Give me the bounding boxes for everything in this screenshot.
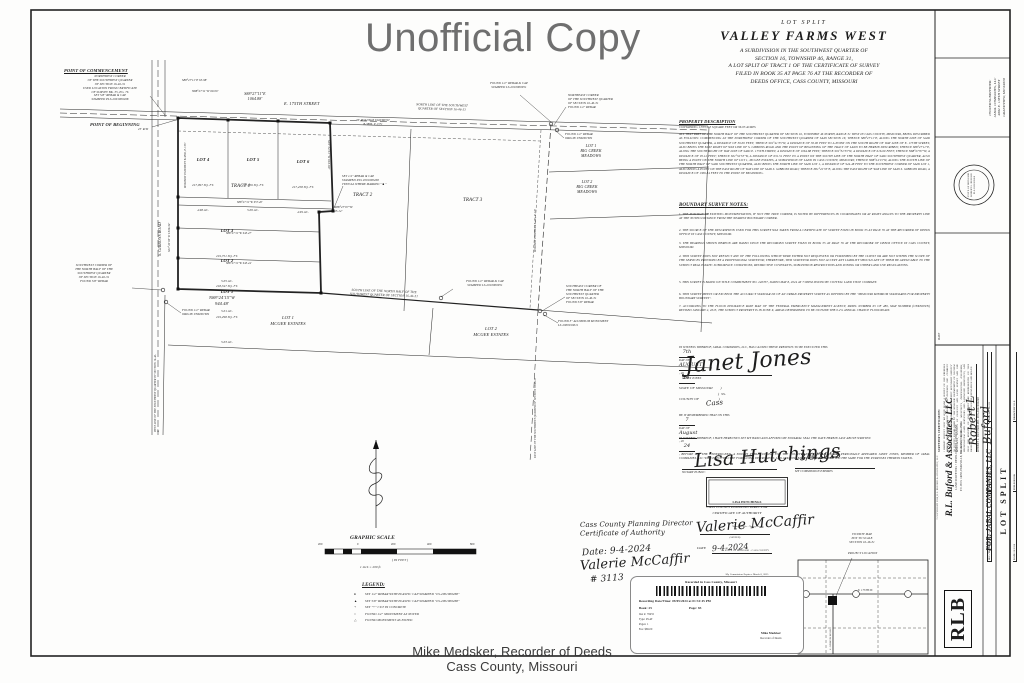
field-date-value: 08/2024 bbox=[1013, 544, 1016, 553]
north-arrow bbox=[369, 440, 382, 528]
found-unknown-ne: FOUND 1/2" REBAR ORIGIN UNKNOWN bbox=[565, 133, 593, 141]
company-name: R.L. Buford & Associates, LLC bbox=[944, 352, 956, 562]
legend-sym-2: + bbox=[354, 605, 356, 609]
execution-end: , 20 bbox=[679, 371, 684, 375]
page-title: VALLEY FARMS WEST bbox=[678, 28, 930, 45]
legend-item-1: SET 5/8" REBAR WITH PLASTIC CAP STAMPED … bbox=[365, 599, 459, 603]
for-client-panel: FOR: JABAL COMPANIES, LLC bbox=[985, 350, 994, 650]
tract3-label: TRACT 3 bbox=[463, 198, 482, 205]
ack-mid: DAY OF bbox=[679, 426, 690, 430]
tract2-label: TRACT 2 bbox=[353, 193, 372, 200]
survey-notes-heading: BOUNDARY SURVEY NOTES: bbox=[679, 203, 748, 210]
vicinity-title: VICINITY MAP NOT TO SCALE SECTION 16-46-… bbox=[832, 533, 892, 545]
recorder-seal-title: Recorder of Deeds bbox=[746, 637, 796, 640]
property-description-body: ALL THAT PART OF THE NORTH HALF OF THE S… bbox=[679, 132, 930, 175]
recording-book: Book: 25 bbox=[639, 606, 652, 610]
big-creek-lot1: LOT 1 BIG CREEK MEADOWS bbox=[568, 143, 614, 159]
point-of-commencement-label: POINT OF COMMENCEMENT bbox=[64, 68, 128, 74]
lot4-name: LOT 4 bbox=[183, 157, 223, 163]
surveyor-seal-text: STATE OF MISSOURI ROBERT L. BUFORD PLS-2… bbox=[967, 166, 976, 204]
vicinity-map-lines bbox=[798, 560, 928, 654]
lot1-label: LOT 1 219,298 SQ. FT. 5.03 AC. bbox=[205, 268, 249, 365]
lot5-name: LOT 5 bbox=[233, 157, 273, 163]
recording-fee: Fee: $69.00 bbox=[639, 628, 652, 631]
west-line-label: WEST LINE OF THE SOUTHWEST QUARTER OF SE… bbox=[154, 352, 161, 432]
scale-in-feet: ( IN FEET ) bbox=[360, 558, 440, 562]
ne-corner-label: NORTHEAST CORNER OF THE SOUTHWEST QUARTE… bbox=[568, 94, 613, 110]
notary-stamp-name: LISA HUTCHINGS bbox=[707, 500, 787, 504]
legend-sym-3: ○ bbox=[354, 612, 356, 616]
lot1-name: LOT 1 bbox=[205, 289, 249, 295]
company-address: P.O. BOX 14058, PARKVILLE, MO. 64152 (81… bbox=[960, 352, 963, 562]
plat-sheet: Unofficial Copy Mike Medsker, Recorder o… bbox=[0, 0, 1024, 683]
footer-county: Cass County, Missouri bbox=[312, 659, 712, 676]
scale-tick-1: 0 bbox=[357, 543, 359, 547]
gibbons-road-label: S. GIBBONS ROAD bbox=[157, 194, 162, 256]
recording-page: Page: 83 bbox=[689, 606, 701, 610]
recording-stamp: Recorded in Cass County, Missouri Record… bbox=[630, 576, 804, 654]
found-aluminum: FOUND 3" ALUMINUM MONUMENT LS-2000019011 bbox=[558, 320, 609, 328]
east-line-label: EAST LINE OF THE SOUTHWEST QUARTER OF SE… bbox=[534, 376, 537, 458]
owner-subdivider-block: OWNER/SUBDIVIDER: JABAL COMPANIES, LLC 4… bbox=[988, 60, 1007, 135]
commission-expires-label: MY COMMISSION EXPIRES bbox=[795, 468, 875, 474]
commission-date-handwritten: 3/8/2025 bbox=[800, 452, 841, 464]
rw-25-label: 25' R/W bbox=[138, 128, 148, 132]
lot6-name: LOT 6 bbox=[283, 159, 323, 165]
legend-title: LEGEND: bbox=[362, 583, 385, 590]
project-location-marker bbox=[828, 596, 837, 605]
owner-signature-name: JANET JONES bbox=[682, 375, 772, 381]
notary-witness-clause: IN WITNESS WHEREOF, I HAVE HEREUNTO SET … bbox=[679, 436, 930, 441]
planning-note-line2: Certificate of Authority bbox=[580, 528, 665, 539]
sw-corner-label: SOUTHWEST CORNER OF THE NORTH HALF OF TH… bbox=[54, 264, 134, 283]
planning-cert-date: 9-4-2024 bbox=[712, 543, 772, 554]
title-block-fields: SEC./TWP./RGE. 16-46-31 COUNTY CASS JOB … bbox=[966, 352, 1024, 562]
recording-pages: Pages: 1 bbox=[639, 623, 649, 626]
found-cap-ne: FOUND 1/2" REBAR & CAP STAMPED LS-201000… bbox=[474, 82, 544, 90]
planning-cert-date-label: DATE bbox=[697, 546, 706, 551]
graphic-scale-title: GRAPHIC SCALE bbox=[350, 535, 395, 542]
recording-datetime: Recording Date/Time: 09/05/2024 at 01:31… bbox=[639, 599, 711, 603]
dim-tract: S88°27'11"W 957.40' bbox=[237, 201, 263, 205]
legend-item-4: FOUND MONUMENT AS NOTED bbox=[365, 618, 412, 622]
lot6-acres: 4.99 AC. bbox=[283, 210, 323, 214]
recording-type: Type: PLAT bbox=[639, 618, 653, 621]
esmt-right-label: ROADWAY EASEMENT E-295, P-128 bbox=[534, 190, 537, 252]
field-fieldbook-label: FIELD BOOK bbox=[1013, 474, 1016, 490]
dim-6598: S88°27'11"E 65.98' bbox=[182, 79, 207, 83]
dim-street: S88°27'11"E 1064.88' bbox=[232, 91, 278, 101]
barcode bbox=[656, 586, 768, 596]
poc-detail: NORTHWEST CORNER OF THE SOUTHWEST QUARTE… bbox=[48, 75, 172, 102]
field-fieldbook: FIELD BOOK bbox=[1013, 422, 1016, 492]
survey-note-5: 5. THIS SURVEY IS BASED ON TITLE COMMITM… bbox=[679, 280, 930, 284]
lot6-label: LOT 6 217,458 SQ. FT. 4.99 AC. bbox=[283, 138, 323, 235]
planning-note-num-script: # 3113 bbox=[590, 573, 625, 587]
se-corner-label: SOUTHEAST CORNER OF THE NORTH HALF OF TH… bbox=[566, 285, 604, 304]
commission-date-script: 3/8/2025 bbox=[800, 451, 842, 466]
big-creek-lot2: LOT 2 BIG CREEK MEADOWS bbox=[564, 179, 610, 195]
planning-cert-h1: CASS COUNTY PLANNING DIRECTOR bbox=[672, 505, 802, 510]
property-description-heading: PROPERTY DESCRIPTION bbox=[679, 119, 735, 125]
ack-pre: BE IT REMEMBERED THAT ON THIS bbox=[679, 413, 730, 417]
scale-tick-3: 400 bbox=[427, 543, 432, 547]
sheet-type-panel: LOT SPLIT bbox=[999, 350, 1009, 650]
owner-signature: Janet Jones bbox=[685, 348, 812, 377]
planning-cert-date-script: 9-4-2024 bbox=[712, 542, 749, 555]
vicinity-street-h: E. 175TH ST. bbox=[858, 589, 873, 592]
field-date-label: DATE bbox=[1013, 553, 1016, 560]
lot4-sqft: 217,097 SQ. FT. bbox=[183, 183, 223, 187]
dim-lot21: S88°27'11"W 943.44' bbox=[226, 262, 252, 266]
legend-sym-0: ● bbox=[354, 592, 356, 596]
lot6-sqft: 217,458 SQ. FT. bbox=[283, 185, 323, 189]
unofficial-copy-watermark: Unofficial Copy bbox=[365, 16, 641, 61]
dim-bottom: N88°24'15"W 944.48' bbox=[196, 295, 248, 307]
planning-cert-signed: (SIGNED) bbox=[700, 534, 770, 539]
ack-day: 7 bbox=[679, 417, 695, 426]
planning-cert-signature: Valerie McCaffir bbox=[696, 515, 814, 533]
recorder-seal-name: Mike Medsker bbox=[746, 632, 796, 636]
surveyor-cert-date: DATE bbox=[938, 300, 942, 340]
tract1-label: TRACT 1 bbox=[231, 184, 250, 191]
found-unknown-sw: FOUND 1/2" REBAR ORIGIN UNKNOWN bbox=[182, 309, 210, 317]
county-handwritten: Cass bbox=[706, 399, 723, 408]
notary-stamp: LISA HUTCHINGS Notary Public - Notary Se… bbox=[706, 477, 788, 507]
set-rebar-note: SET 1/2" REBAR & CAP STAMPED PLS 2001000… bbox=[342, 175, 387, 187]
mcgee-lot1: LOT 1 MCGEE ESTATES bbox=[258, 315, 318, 327]
street-label: E. 175TH STREET bbox=[284, 101, 320, 107]
planning-note-number: # 3113 bbox=[590, 574, 624, 586]
legend-sym-4: △ bbox=[354, 618, 357, 622]
field-drawnby: DRAWN BY RLB bbox=[1013, 352, 1016, 422]
survey-note-3: 3. THE BEARINGS SHOWN HEREON ARE BASED U… bbox=[679, 241, 930, 250]
dim-lot32: S88°27'11"W 943.47' bbox=[226, 232, 252, 236]
legend-sym-1: ▲ bbox=[354, 599, 357, 603]
planning-note-signature: Valerie McCaffir bbox=[580, 555, 690, 572]
found-cap-south: FOUND 1/2" REBAR & CAP STAMPED LS-201000… bbox=[450, 280, 520, 288]
dim-west-line: S01°41'35"W 1306.34' bbox=[168, 192, 172, 252]
scale-tick-4: 800 bbox=[470, 543, 475, 547]
company-tagline: LAND SURVEYING • DEVELOPMENT CONSULTANT bbox=[955, 352, 958, 562]
graphic-scale-bar bbox=[325, 549, 476, 554]
title-kicker: LOT SPLIT bbox=[678, 20, 930, 28]
dim-6000: N88°27'11"W 60.00' bbox=[192, 90, 218, 94]
recording-header: Recorded in Cass County, Missouri bbox=[651, 580, 771, 584]
dim-jog: N88°27'07"W 95.12' bbox=[334, 205, 353, 213]
dim-east-line: S01°32'53"W 616.60' bbox=[327, 140, 331, 198]
scale-inch: 1 inch = 200 ft. bbox=[360, 565, 381, 569]
survey-note-4: 4. THIS SURVEY DOES NOT REFLECT ANY OF T… bbox=[679, 254, 930, 267]
mcgee-lot2: LOT 2 MCGEE ESTATES bbox=[458, 326, 524, 338]
field-drawnby-value: RLB bbox=[1013, 401, 1016, 406]
copyright-note: © COPYRIGHT 2024, R.L. BUFORD & ASSOCIAT… bbox=[936, 370, 939, 520]
field-date: DATE 08/2024 bbox=[1013, 492, 1016, 562]
notary-public-label: NOTARY PUBLIC bbox=[682, 469, 777, 475]
survey-note-1: 1. THE POSITION OF EXISTING MONUMENTATIO… bbox=[679, 212, 930, 221]
scale-tick-0: 200 bbox=[318, 543, 323, 547]
field-drawnby-label: DRAWN BY bbox=[1013, 406, 1016, 420]
rlb-logo: RLB bbox=[944, 590, 972, 648]
survey-note-6: 6. THIS SURVEY MEETS OR EXCEEDS THE ACCU… bbox=[679, 292, 930, 301]
lot1-sqft: 219,298 SQ. FT. bbox=[205, 315, 249, 319]
project-location-label: PROJECT LOCATION bbox=[848, 552, 877, 556]
esmt-top-label: 30' ROADWAY EASEMENT B-3886, P-1371 bbox=[342, 119, 404, 126]
legend-item-0: SET 1/2" REBAR WITH PLASTIC CAP STAMPED … bbox=[365, 592, 459, 596]
point-of-beginning-label: POINT OF BEGINNING bbox=[90, 122, 140, 128]
recording-inst: Inst #: 78455 bbox=[639, 613, 654, 616]
lot1-acres: 5.03 AC. bbox=[205, 340, 249, 344]
property-containing: CONTAINING 1,553,113 SQUARE FEET OR 36.0… bbox=[679, 126, 756, 130]
vicinity-street-v: S. GIBBONS ROAD bbox=[829, 606, 832, 650]
survey-note-7: 7. ACCORDING TO THE FLOOD INSURANCE RATE… bbox=[679, 304, 930, 313]
scale-tick-2: 200 bbox=[391, 543, 396, 547]
title-subtitle: A SUBDIVISION IN THE SOUTHWEST QUARTER O… bbox=[678, 48, 930, 86]
legend-item-2: SET "+" CUT IN CONCRETE bbox=[365, 605, 406, 609]
survey-note-2: 2. THE SOURCE OF THE DESCRIPTION USED FO… bbox=[679, 228, 930, 237]
legend-item-3: FOUND 1/2" MONUMENT AS NOTED bbox=[365, 612, 419, 616]
